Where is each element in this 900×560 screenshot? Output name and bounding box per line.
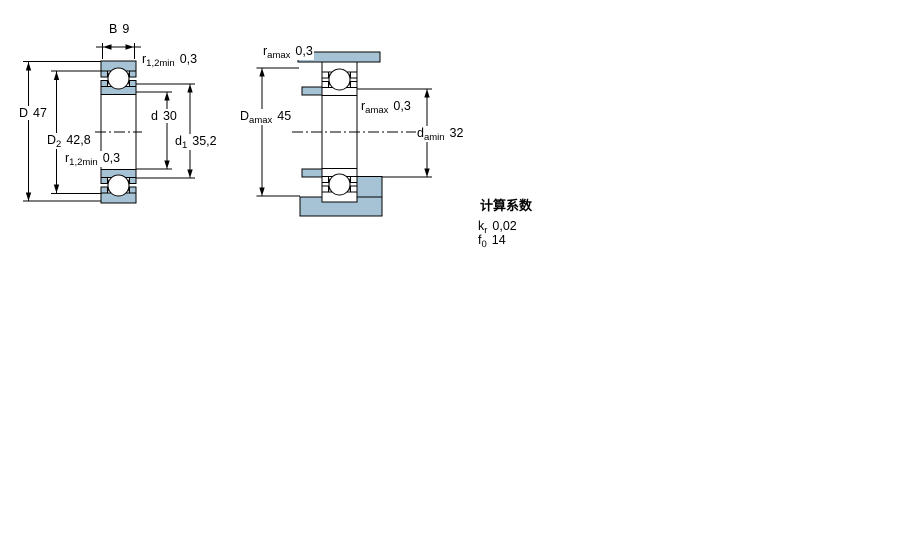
dim-label-bore-diameter: d30 (150, 109, 178, 123)
shaft-step-section (357, 177, 382, 198)
shaft-shoulder-bottom (302, 169, 322, 177)
calc-factor-f0: f014 (478, 233, 506, 249)
dim-label-ra-mid: ramax0,3 (360, 99, 412, 115)
dim-label-width-b: B9 (108, 22, 130, 36)
bearing-ball-bottom (108, 175, 129, 196)
left-section-drawing (95, 61, 142, 203)
bearing-ball-top (108, 68, 129, 89)
dim-label-ra-top: ramax0,3 (262, 44, 314, 60)
bearing-drawing-page: B9 r1,2min0,3 D47 D242,8 r1,2min0,3 d30 … (0, 0, 900, 560)
dim-label-outer-diameter: D47 (18, 106, 48, 120)
calc-factors-title: 计算系数 (480, 195, 532, 214)
dim-label-da-min: damin32 (416, 126, 464, 142)
bearing-diagram-linework (0, 0, 900, 560)
dim-label-d2: D242,8 (46, 133, 92, 149)
dim-label-r12-bottom: r1,2min0,3 (64, 151, 121, 167)
dim-label-da-max: Damax45 (239, 109, 292, 125)
shaft-shoulder-top (302, 87, 322, 95)
dim-label-r12-top: r1,2min0,3 (141, 52, 198, 68)
dim-label-d1: d135,2 (174, 134, 218, 150)
